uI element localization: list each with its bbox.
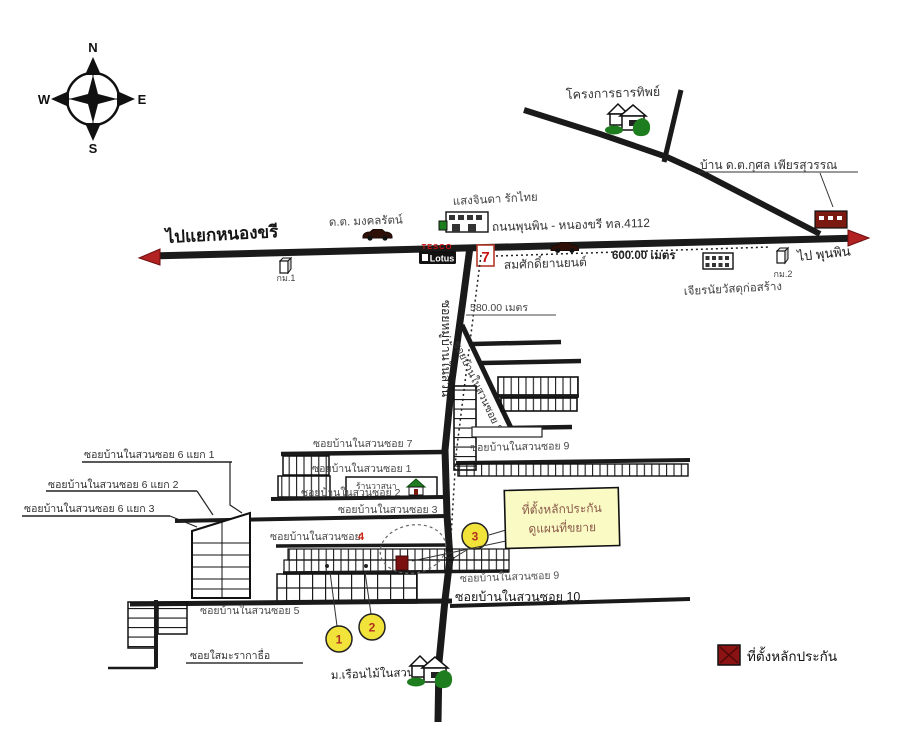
compass-arrow-w-icon: [51, 91, 69, 107]
road-soi2: [271, 497, 445, 499]
plot-dot-1: [325, 564, 329, 568]
highway: ไปแยกหนองขรี ถนนพุนพิน - หนองขรี ทล.4112…: [139, 216, 869, 283]
project-houses-icon: [605, 104, 650, 136]
label-saengjinda: แสงจินดา รักไทย: [452, 191, 538, 208]
upper-right-area: โครงการธารทิพย์ บ้าน ด.ต.กุศล เพียรสุวรร…: [524, 84, 858, 234]
tesco-lotus-sign: TESCO Lotus: [419, 242, 456, 264]
label-km1: กม.1: [277, 273, 296, 283]
arrow-right-icon: [848, 230, 869, 246]
soi6-1-connector: [230, 462, 242, 513]
km2-post-icon: [777, 248, 788, 263]
marker-1-label: 1: [336, 633, 343, 647]
label-highway-name: ถนนพุนพิน - หนองขรี ทล.4112: [492, 216, 651, 235]
car-icon: [363, 230, 392, 241]
blank-label-box: [472, 427, 542, 437]
plot-grid-east-a: [498, 377, 578, 395]
village-houses-icon: [407, 656, 452, 688]
soi6-branch-labels: ซอยบ้านในสวนซอย 6 แยก 1 ซอยบ้านในสวนซอย …: [22, 448, 242, 527]
label-soi4-number: 4: [358, 531, 365, 543]
marker-3-label: 3: [472, 530, 479, 544]
road-branch: [664, 90, 681, 162]
tesco-label: TESCO: [422, 242, 453, 251]
road-soi4: [276, 545, 447, 546]
callout-pointer-2: [489, 530, 506, 535]
road-soi7: [281, 452, 445, 454]
label-km2: กม.2: [774, 269, 793, 279]
marker-circle-3: 3: [462, 523, 488, 549]
label-police-house: บ้าน ด.ต.กุศล เพียรสุวรรณ: [700, 158, 837, 173]
site-map-svg: N E S W ไปแยกหนองขรี ถนนพุนพิน - หนองขรี…: [0, 0, 900, 745]
police-house-pointer: [820, 173, 833, 207]
legend: ที่ตั้งหลักประกัน: [718, 645, 837, 665]
tall-plot-grid: [192, 513, 250, 598]
callout-rect: [504, 488, 619, 549]
collateral-marker: [396, 556, 408, 570]
road-east-2: [482, 361, 581, 363]
label-project: โครงการธารทิพย์: [566, 84, 661, 102]
compass-rose: N E S W: [38, 40, 147, 156]
label-distance-580: 580.00 เมตร: [470, 302, 528, 314]
marker-circle-1: 1: [326, 626, 352, 652]
label-soi3: ซอยบ้านในสวนซอย 3: [338, 503, 438, 516]
plot-dot-2: [364, 564, 368, 568]
label-distance-600: 600.00 เมตร: [612, 250, 676, 262]
label-soi1: ซอยบ้านในสวนซอย 1: [312, 462, 412, 475]
callout-box: ที่ตั้งหลักประกัน ดูแผนที่ขยาย: [504, 488, 619, 549]
compass-s-label: S: [89, 141, 98, 156]
label-soi5: ซอยบ้านในสวนซอย 5: [200, 604, 300, 617]
compass-n-label: N: [88, 40, 97, 55]
label-to-nongkhri: ไปแยกหนองขรี: [163, 221, 279, 247]
label-vertical-soi-name: ซอยหมู่บ้านในสวน: [438, 300, 453, 397]
road-soi9: [456, 460, 690, 463]
compass-e-label: E: [138, 92, 147, 107]
label-village: ม.เรือนไม้ในสวน: [331, 666, 415, 682]
marker-2-label: 2: [369, 621, 376, 635]
label-saimaka: ซอยใสมะรากาธื่อ: [190, 648, 270, 662]
soi-ban-nai-suan-road: ซอยหมู่บ้านในสวน 580.00 เมตร ซอยบ้านในสว…: [438, 247, 556, 722]
label-to-phunphin: ไป พุนพิน: [796, 243, 852, 265]
compass-star-icon: [69, 75, 117, 123]
km1-post-icon: [280, 258, 291, 273]
legend-label: ที่ตั้งหลักประกัน: [747, 646, 837, 664]
compass-arrow-s-icon: [85, 123, 101, 141]
seven-eleven-label: 7: [481, 249, 489, 266]
map-canvas: N E S W ไปแยกหนองขรี ถนนพุนพิน - หนองขรี…: [0, 0, 900, 745]
road-soi3: [175, 516, 446, 521]
label-soi7: ซอยบ้านในสวนซอย 7: [313, 437, 413, 450]
lotus-label: Lotus: [430, 254, 455, 264]
road-east-1: [473, 342, 561, 344]
label-materials-shop: เจียรนัยวัสดุก่อสร้าง: [683, 280, 782, 298]
label-soi9-upper: ซอยบ้านในสวนซอย 9: [470, 439, 570, 454]
materials-shop-icon: [703, 253, 733, 269]
police-house-icon: [815, 211, 847, 228]
plot-grid-east-b: [501, 398, 577, 411]
label-soi6-2: ซอยบ้านในสวนซอย 6 แยก 2: [48, 478, 179, 491]
compass-arrow-e-icon: [117, 91, 135, 107]
seven-eleven-sign: 7: [477, 245, 494, 266]
label-soi6-1: ซอยบ้านในสวนซอย 6 แยก 1: [84, 448, 215, 461]
compass-arrow-n-icon: [85, 57, 101, 75]
staircase-plots: [108, 600, 187, 668]
saengjinda-building-icon: [439, 212, 488, 232]
plot-grid-soi9: [458, 464, 688, 476]
soi6-2-connector: [197, 491, 213, 515]
label-soi4: ซอยบ้านในสวนซอย: [270, 530, 361, 543]
label-soi6-3: ซอยบ้านในสวนซอย 6 แยก 3: [24, 502, 155, 515]
callout-line2: ดูแผนที่ขยาย: [528, 518, 596, 537]
arrow-left-icon: [139, 249, 160, 265]
lotus-dot-icon: [422, 254, 428, 261]
marker-circle-2: 2: [359, 614, 385, 640]
label-mongkol: ด.ต. มงคลรัตน์: [329, 212, 404, 229]
compass-w-label: W: [38, 92, 51, 107]
